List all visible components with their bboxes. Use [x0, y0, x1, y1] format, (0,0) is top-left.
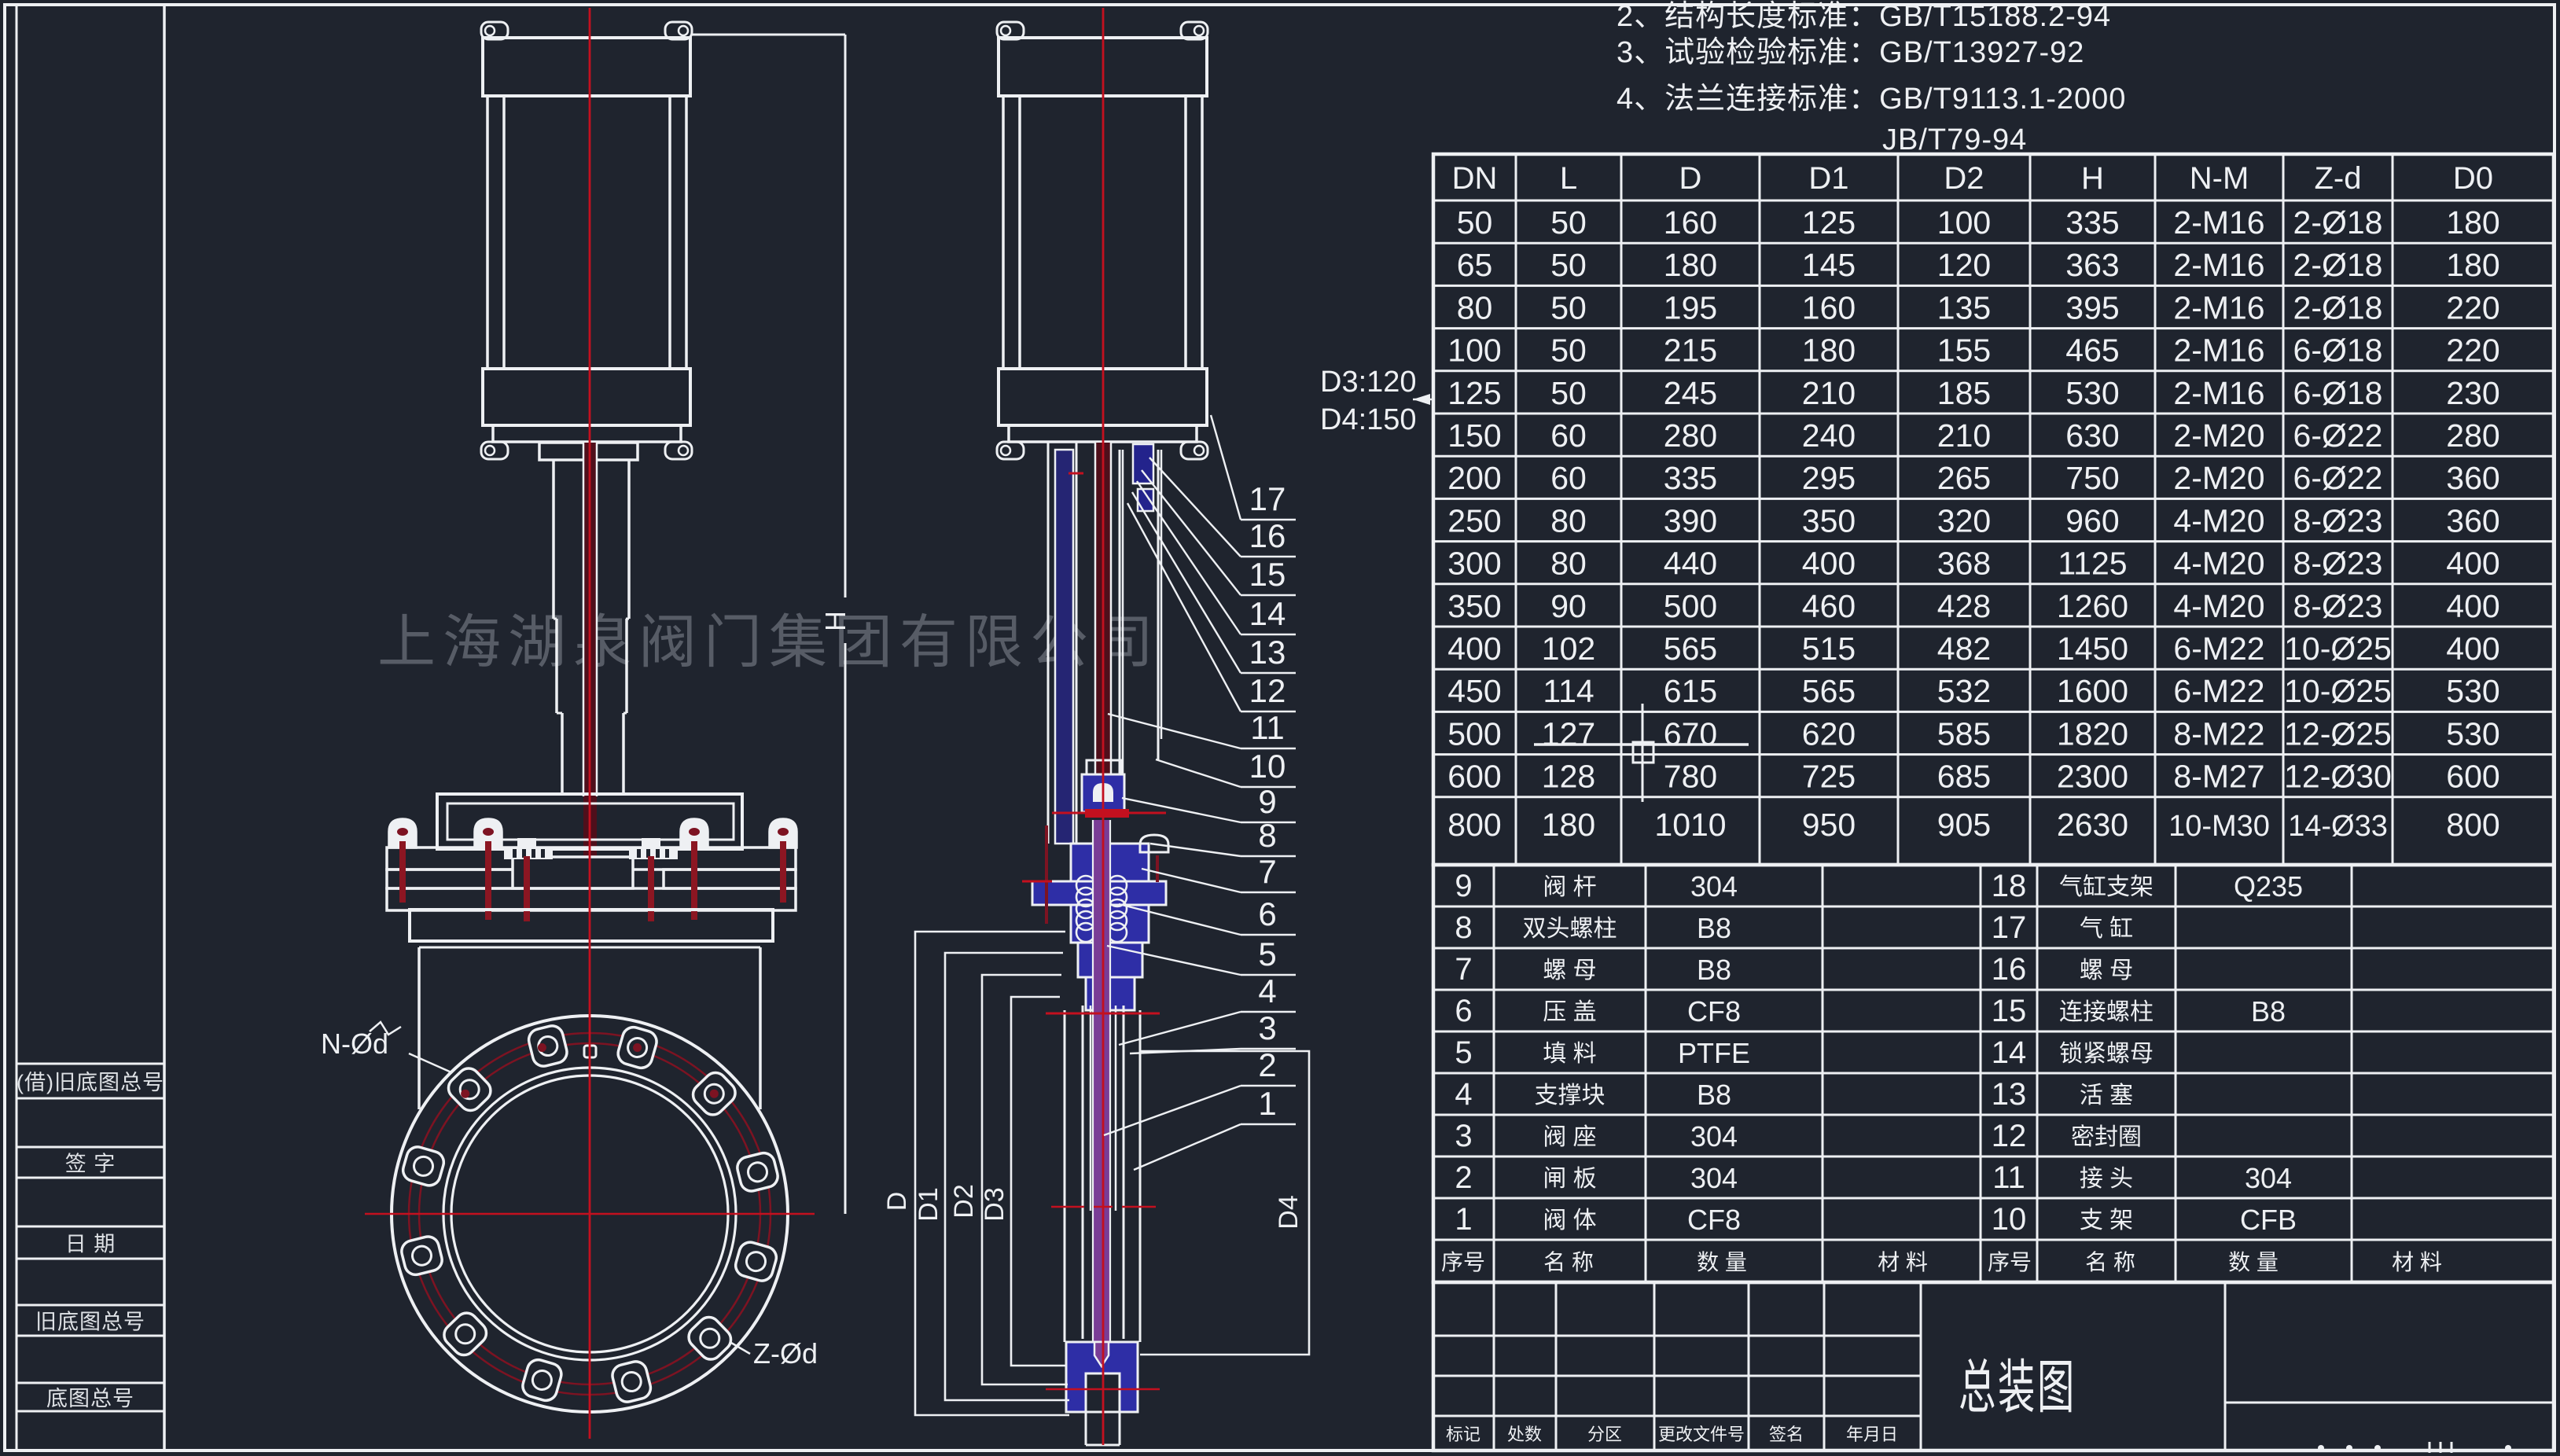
svg-text:615: 615	[1664, 673, 1717, 709]
svg-text:密封圈: 密封圈	[2071, 1124, 2142, 1150]
svg-text:350: 350	[1447, 588, 1501, 624]
svg-text:12-Ø25: 12-Ø25	[2284, 715, 2392, 752]
svg-text:H: H	[2081, 161, 2104, 196]
svg-text:12: 12	[1992, 1119, 2027, 1153]
svg-text:230: 230	[2446, 375, 2499, 411]
svg-text:50: 50	[1457, 204, 1493, 241]
svg-text:名 称: 名 称	[1543, 1250, 1594, 1274]
svg-text:2-M16: 2-M16	[2173, 204, 2264, 241]
svg-text:12: 12	[1249, 672, 1286, 709]
svg-text:530: 530	[2446, 673, 2499, 709]
svg-text:360: 360	[2446, 460, 2499, 496]
svg-text:处数: 处数	[1507, 1425, 1542, 1444]
svg-text:180: 180	[2446, 204, 2499, 241]
svg-text:14-Ø33: 14-Ø33	[2288, 810, 2388, 843]
svg-text:上海湖泉阀门集团有限公司: 上海湖泉阀门集团有限公司	[377, 609, 1160, 675]
svg-text:序号: 序号	[1988, 1250, 2032, 1274]
svg-text:200: 200	[1447, 460, 1501, 496]
svg-text:8: 8	[1455, 910, 1472, 945]
svg-text:1450: 1450	[2057, 631, 2128, 667]
svg-text:签 字: 签 字	[65, 1153, 116, 1176]
svg-text:585: 585	[1937, 715, 1991, 752]
svg-text:6-M22: 6-M22	[2173, 631, 2264, 667]
svg-text:D2: D2	[949, 1184, 979, 1218]
svg-text:螺 母: 螺 母	[1543, 958, 1596, 984]
svg-text:活 塞: 活 塞	[2080, 1083, 2133, 1109]
svg-text:4-M20: 4-M20	[2173, 502, 2264, 539]
svg-text:15: 15	[1249, 556, 1286, 593]
svg-text:旧底图总号: 旧底图总号	[35, 1311, 145, 1334]
svg-text:127: 127	[1542, 715, 1595, 752]
svg-text:125: 125	[1802, 204, 1856, 241]
svg-text:2-Ø18: 2-Ø18	[2293, 289, 2383, 325]
svg-text:304: 304	[2245, 1162, 2292, 1194]
svg-text:800: 800	[1447, 807, 1501, 843]
svg-text:12-Ø30: 12-Ø30	[2284, 759, 2392, 795]
svg-text:6-Ø22: 6-Ø22	[2293, 460, 2383, 496]
svg-text:B8: B8	[1697, 912, 1731, 944]
svg-text:50: 50	[1550, 247, 1587, 283]
svg-text:阀 体: 阀 体	[1543, 1208, 1596, 1234]
svg-text:数 量: 数 量	[2228, 1250, 2279, 1274]
svg-text:350: 350	[1802, 502, 1856, 539]
svg-text:D3:120: D3:120	[1320, 366, 1417, 399]
svg-text:H: H	[819, 611, 851, 631]
svg-text:D4:150: D4:150	[1320, 403, 1417, 436]
svg-text:295: 295	[1802, 460, 1856, 496]
svg-text:135: 135	[1937, 289, 1991, 325]
svg-text:9: 9	[1258, 783, 1276, 820]
svg-text:620: 620	[1802, 715, 1856, 752]
svg-text:60: 60	[1550, 460, 1587, 496]
svg-text:80: 80	[1550, 502, 1587, 539]
svg-text:4-M20: 4-M20	[2173, 546, 2264, 582]
svg-text:2630: 2630	[2057, 807, 2128, 843]
svg-text:3: 3	[1455, 1119, 1472, 1153]
svg-text:接 头: 接 头	[2080, 1166, 2133, 1192]
svg-text:PTFE: PTFE	[1678, 1037, 1750, 1069]
svg-text:L: L	[1560, 161, 1577, 196]
svg-text:335: 335	[2065, 204, 2119, 241]
svg-text:128: 128	[1542, 759, 1595, 795]
svg-text:360: 360	[2446, 502, 2499, 539]
svg-text:2-Ø18: 2-Ø18	[2293, 247, 2383, 283]
svg-text:锁紧螺母: 锁紧螺母	[2059, 1041, 2154, 1067]
svg-text:2、结构长度标准：GB/T15188.2-94: 2、结构长度标准：GB/T15188.2-94	[1617, 0, 2111, 33]
svg-text:17: 17	[1249, 480, 1286, 517]
svg-text:500: 500	[1447, 715, 1501, 752]
svg-text:气缸支架: 气缸支架	[2059, 874, 2154, 900]
svg-text:2300: 2300	[2057, 759, 2128, 795]
svg-text:210: 210	[1802, 375, 1856, 411]
svg-text:17: 17	[1992, 910, 2027, 945]
svg-text:6-Ø22: 6-Ø22	[2293, 417, 2383, 454]
svg-text:压 盖: 压 盖	[1543, 999, 1596, 1025]
svg-text:更改文件号: 更改文件号	[1658, 1425, 1745, 1444]
svg-text:395: 395	[2065, 289, 2119, 325]
svg-text:368: 368	[1937, 546, 1991, 582]
svg-text:10-M30: 10-M30	[2168, 810, 2270, 843]
svg-text:Z-d: Z-d	[2315, 161, 2362, 196]
svg-text:304: 304	[1690, 1120, 1738, 1153]
svg-text:725: 725	[1802, 759, 1856, 795]
svg-text:8-Ø23: 8-Ø23	[2293, 502, 2383, 539]
svg-text:连接螺柱: 连接螺柱	[2059, 999, 2154, 1025]
svg-text:2-M16: 2-M16	[2173, 375, 2264, 411]
svg-text:465: 465	[2065, 333, 2119, 369]
svg-text:160: 160	[1802, 289, 1856, 325]
svg-text:Z-Ød: Z-Ød	[753, 1337, 818, 1370]
svg-text:280: 280	[1664, 417, 1717, 454]
svg-text:JB/T79-94: JB/T79-94	[1882, 123, 2027, 156]
svg-text:460: 460	[1802, 588, 1856, 624]
svg-text:螺 母: 螺 母	[2080, 958, 2133, 984]
svg-text:400: 400	[1447, 631, 1501, 667]
svg-text:180: 180	[1802, 333, 1856, 369]
svg-text:50: 50	[1550, 289, 1587, 325]
svg-text:CFB: CFB	[2240, 1204, 2297, 1236]
svg-text:10: 10	[1249, 748, 1286, 785]
svg-text:304: 304	[1690, 870, 1738, 903]
svg-text:双头螺柱: 双头螺柱	[1523, 916, 1617, 942]
svg-text:400: 400	[2446, 546, 2499, 582]
svg-text:320: 320	[1937, 502, 1991, 539]
svg-text:2-M16: 2-M16	[2173, 247, 2264, 283]
svg-text:428: 428	[1937, 588, 1991, 624]
svg-text:Q235: Q235	[2234, 870, 2303, 903]
svg-text:2-M20: 2-M20	[2173, 417, 2264, 454]
svg-text:195: 195	[1664, 289, 1717, 325]
svg-text:填 料: 填 料	[1543, 1041, 1596, 1067]
svg-text:8-M22: 8-M22	[2173, 715, 2264, 752]
svg-text:600: 600	[2446, 759, 2499, 795]
svg-text:440: 440	[1664, 546, 1717, 582]
svg-text:630: 630	[2065, 417, 2119, 454]
svg-text:482: 482	[1937, 631, 1991, 667]
svg-text:6-Ø18: 6-Ø18	[2293, 375, 2383, 411]
svg-text:50: 50	[1550, 204, 1587, 241]
svg-text:500: 500	[1664, 588, 1717, 624]
svg-text:185: 185	[1937, 375, 1991, 411]
svg-text:114: 114	[1543, 673, 1594, 709]
svg-text:100: 100	[1937, 204, 1991, 241]
svg-text:支 架: 支 架	[2080, 1208, 2133, 1234]
svg-text:B8: B8	[2251, 995, 2286, 1028]
svg-text:80: 80	[1457, 289, 1493, 325]
svg-text:245: 245	[1664, 375, 1717, 411]
svg-text:2: 2	[1258, 1046, 1276, 1083]
svg-text:280: 280	[2446, 417, 2499, 454]
svg-text:8-M27: 8-M27	[2173, 759, 2264, 795]
svg-text:685: 685	[1937, 759, 1991, 795]
svg-text:CF8: CF8	[1687, 1204, 1741, 1236]
svg-text:50: 50	[1550, 375, 1587, 411]
svg-text:8: 8	[1258, 817, 1276, 854]
svg-text:532: 532	[1937, 673, 1991, 709]
svg-text:780: 780	[1664, 759, 1717, 795]
svg-text:8-Ø23: 8-Ø23	[2293, 588, 2383, 624]
svg-text:16: 16	[1249, 517, 1286, 554]
svg-text:11: 11	[1992, 1160, 2025, 1195]
svg-text:3、试验检验标准：GB/T13927-92: 3、试验检验标准：GB/T13927-92	[1617, 36, 2084, 69]
svg-text:阀 杆: 阀 杆	[1543, 874, 1596, 900]
svg-text:11: 11	[1250, 709, 1285, 746]
svg-text:125: 125	[1447, 375, 1501, 411]
svg-text:N-Ød: N-Ød	[321, 1028, 388, 1060]
svg-text:950: 950	[1802, 807, 1856, 843]
svg-text:120: 120	[1937, 247, 1991, 283]
svg-text:4-M20: 4-M20	[2173, 588, 2264, 624]
svg-text:304: 304	[1690, 1162, 1738, 1194]
svg-text:分区: 分区	[1587, 1425, 1622, 1444]
svg-text:名 称: 名 称	[2085, 1250, 2135, 1274]
svg-text:B8: B8	[1697, 1079, 1731, 1111]
svg-text:数 量: 数 量	[1697, 1250, 1747, 1274]
svg-text:2-M16: 2-M16	[2173, 289, 2264, 325]
svg-text:D3: D3	[980, 1187, 1010, 1221]
svg-text:155: 155	[1937, 333, 1991, 369]
svg-text:335: 335	[1664, 460, 1717, 496]
svg-text:8-Ø23: 8-Ø23	[2293, 546, 2383, 582]
svg-text:D0: D0	[2453, 161, 2493, 196]
svg-text:4: 4	[1258, 973, 1276, 1009]
svg-text:1820: 1820	[2057, 715, 2128, 752]
svg-text:闸 板: 闸 板	[1543, 1166, 1596, 1192]
svg-text:标记: 标记	[1446, 1425, 1480, 1444]
svg-text:7: 7	[1455, 952, 1472, 987]
svg-text:6-M22: 6-M22	[2173, 673, 2264, 709]
svg-text:4、法兰连接标准：GB/T9113.1-2000: 4、法兰连接标准：GB/T9113.1-2000	[1617, 83, 2126, 116]
svg-text:2-M20: 2-M20	[2173, 460, 2264, 496]
svg-text:515: 515	[1802, 631, 1856, 667]
svg-text:(借)旧底图总号: (借)旧底图总号	[17, 1071, 164, 1094]
svg-text:D4: D4	[1274, 1195, 1304, 1229]
svg-text:CF8: CF8	[1687, 995, 1741, 1028]
svg-text:215: 215	[1664, 333, 1717, 369]
svg-text:签名: 签名	[1769, 1425, 1804, 1444]
svg-text:4: 4	[1455, 1077, 1472, 1112]
svg-text:1125: 1125	[2058, 546, 2127, 582]
svg-text:905: 905	[1937, 807, 1991, 843]
svg-text:15: 15	[1992, 994, 2027, 1028]
svg-text:1260: 1260	[2057, 588, 2128, 624]
svg-text:DN: DN	[1452, 161, 1498, 196]
svg-text:145: 145	[1802, 247, 1856, 283]
svg-text:250: 250	[1447, 502, 1501, 539]
svg-text:底图总号: 底图总号	[46, 1387, 134, 1410]
svg-text:6: 6	[1455, 994, 1472, 1028]
svg-text:400: 400	[2446, 631, 2499, 667]
svg-text:10-Ø25: 10-Ø25	[2284, 673, 2392, 709]
svg-text:150: 150	[1447, 417, 1501, 454]
svg-text:D: D	[1679, 161, 1702, 196]
svg-text:60: 60	[1550, 417, 1587, 454]
svg-text:800: 800	[2446, 807, 2499, 843]
svg-text:9: 9	[1455, 869, 1472, 903]
svg-text:300: 300	[1447, 546, 1501, 582]
svg-text:2: 2	[1455, 1160, 1472, 1195]
svg-text:363: 363	[2065, 247, 2119, 283]
svg-text:5: 5	[1258, 936, 1276, 973]
svg-text:阀 座: 阀 座	[1543, 1124, 1596, 1150]
svg-text:1: 1	[1258, 1085, 1276, 1122]
svg-text:1600: 1600	[2057, 673, 2128, 709]
svg-text:1010: 1010	[1654, 807, 1726, 843]
svg-text:材 料: 材 料	[1878, 1250, 1928, 1274]
svg-text:18: 18	[1992, 869, 2027, 903]
svg-text:210: 210	[1937, 417, 1991, 454]
svg-text:D2: D2	[1944, 161, 1984, 196]
svg-text:3: 3	[1258, 1009, 1276, 1046]
svg-text:支撑块: 支撑块	[1535, 1083, 1606, 1109]
svg-text:2-Ø18: 2-Ø18	[2293, 204, 2383, 241]
svg-text:D1: D1	[1808, 161, 1848, 196]
svg-text:N-M: N-M	[2190, 161, 2249, 196]
svg-text:265: 265	[1937, 460, 1991, 496]
svg-text:气 缸: 气 缸	[2080, 916, 2133, 942]
svg-text:240: 240	[1802, 417, 1856, 454]
svg-text:D: D	[882, 1192, 912, 1211]
svg-text:565: 565	[1802, 673, 1856, 709]
svg-text:65: 65	[1457, 247, 1493, 283]
svg-text:400: 400	[1802, 546, 1856, 582]
svg-text:750: 750	[2065, 460, 2119, 496]
svg-text:7: 7	[1258, 853, 1276, 890]
svg-text:530: 530	[2446, 715, 2499, 752]
svg-text:450: 450	[1447, 673, 1501, 709]
svg-text:100: 100	[1447, 333, 1501, 369]
svg-text:6: 6	[1258, 895, 1276, 932]
svg-text:670: 670	[1664, 715, 1717, 752]
svg-text:180: 180	[1542, 807, 1595, 843]
svg-text:160: 160	[1664, 204, 1717, 241]
svg-text:6-Ø18: 6-Ø18	[2293, 333, 2383, 369]
svg-text:180: 180	[2446, 247, 2499, 283]
svg-text:2-M16: 2-M16	[2173, 333, 2264, 369]
svg-text:总装图: 总装图	[1959, 1355, 2076, 1420]
svg-text:600: 600	[1447, 759, 1501, 795]
svg-text:90: 90	[1550, 588, 1587, 624]
svg-text:180: 180	[1664, 247, 1717, 283]
svg-text:10-Ø25: 10-Ø25	[2284, 631, 2392, 667]
svg-text:1: 1	[1455, 1202, 1472, 1237]
svg-text:序号: 序号	[1441, 1250, 1485, 1274]
svg-text:14: 14	[1249, 595, 1286, 632]
svg-text:565: 565	[1664, 631, 1717, 667]
svg-text:13: 13	[1992, 1077, 2027, 1112]
svg-text:年月日: 年月日	[1846, 1425, 1898, 1444]
svg-text:13: 13	[1249, 634, 1286, 671]
svg-text:D1: D1	[914, 1187, 943, 1221]
svg-text:80: 80	[1550, 546, 1587, 582]
svg-text:10: 10	[1992, 1202, 2027, 1237]
svg-text:B8: B8	[1697, 954, 1731, 986]
svg-text:50: 50	[1550, 333, 1587, 369]
svg-text:220: 220	[2446, 333, 2499, 369]
svg-text:日 期: 日 期	[65, 1233, 116, 1256]
svg-text:220: 220	[2446, 289, 2499, 325]
svg-text:530: 530	[2065, 375, 2119, 411]
svg-text:390: 390	[1664, 502, 1717, 539]
svg-text:16: 16	[1992, 952, 2027, 987]
svg-text:960: 960	[2065, 502, 2119, 539]
svg-text:5: 5	[1455, 1035, 1472, 1070]
svg-text:材 料: 材 料	[2392, 1250, 2442, 1274]
svg-text:102: 102	[1542, 631, 1595, 667]
svg-text:14: 14	[1992, 1035, 2027, 1070]
svg-text:400: 400	[2446, 588, 2499, 624]
